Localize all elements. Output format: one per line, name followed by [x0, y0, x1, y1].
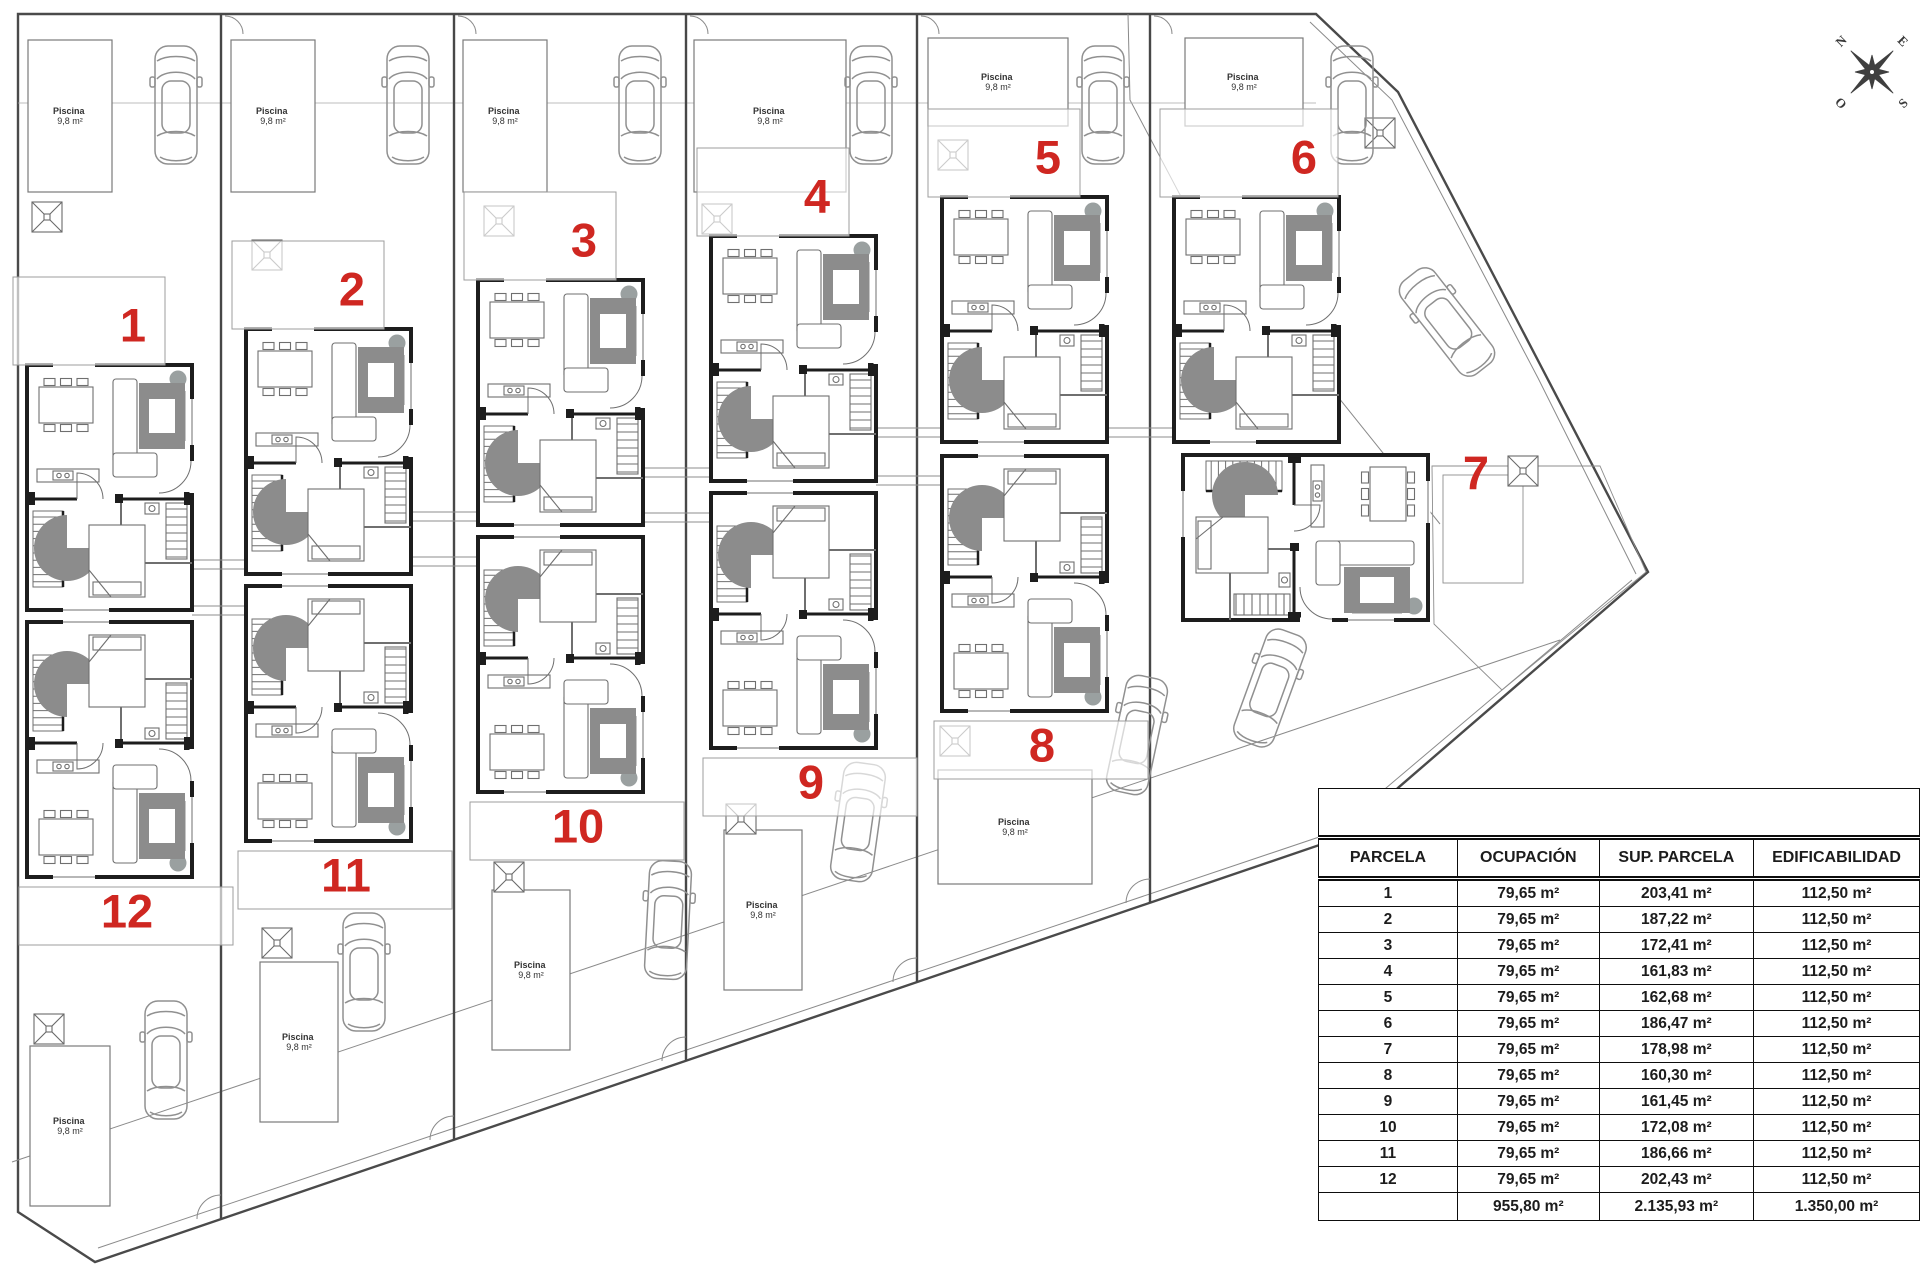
house-plan-parcel-9: [711, 491, 879, 751]
table-cell: 162,68 m²: [1599, 985, 1753, 1011]
gate-arc: [1126, 879, 1150, 903]
table-cell: 202,43 m²: [1599, 1167, 1753, 1193]
kitchen-counter: [952, 301, 1014, 314]
house-plan-parcel-3: [478, 278, 646, 528]
table-header-row: PARCELAOCUPACIÓNSUP. PARCELAEDIFICABILID…: [1319, 838, 1920, 879]
table-cell: 5: [1319, 985, 1458, 1011]
kitchen-counter: [488, 675, 550, 688]
table-cell: 79,65 m²: [1457, 959, 1599, 985]
bed: [89, 635, 145, 707]
compass-letter: N: [1832, 32, 1850, 50]
table-title-row: [1319, 789, 1920, 838]
table-cell: 172,41 m²: [1599, 933, 1753, 959]
drain-grate-icon: [262, 928, 292, 958]
car-icon: [338, 913, 390, 1031]
gate-arc: [1154, 16, 1172, 34]
table-row: 879,65 m²160,30 m²112,50 m²: [1319, 1063, 1920, 1089]
table-cell: 79,65 m²: [1457, 1141, 1599, 1167]
table-cell: 6: [1319, 1011, 1458, 1037]
parcel-number-7: 7: [1463, 447, 1489, 500]
walkway: [876, 476, 942, 485]
totals-cell: 955,80 m²: [1457, 1193, 1599, 1221]
table-cell: 8: [1319, 1063, 1458, 1089]
table-cell: 112,50 m²: [1754, 879, 1920, 907]
pool: Piscina 9,8 m²: [938, 770, 1092, 884]
totals-cell: 2.135,93 m²: [1599, 1193, 1753, 1221]
house-plan-parcel-6: [1174, 195, 1342, 445]
kitchen-counter: [37, 760, 99, 773]
table-cell: 79,65 m²: [1457, 985, 1599, 1011]
pool-label: Piscina 9,8 m²: [998, 817, 1032, 837]
table-row: 1279,65 m²202,43 m²112,50 m²: [1319, 1167, 1920, 1193]
bed: [1196, 517, 1268, 573]
house-plan-parcel-7: [1181, 455, 1431, 623]
gate-arc: [225, 16, 243, 34]
dining-table: [39, 379, 93, 432]
pool-label: Piscina 9,8 m²: [53, 106, 87, 126]
drain-grate-icon: [1508, 456, 1538, 486]
pool: Piscina 9,8 m²: [463, 40, 547, 192]
parcel-number-1: 1: [120, 299, 146, 352]
compass-letter: S: [1895, 95, 1911, 111]
totals-cell: [1319, 1193, 1458, 1221]
pool: Piscina 9,8 m²: [231, 40, 315, 192]
column-header: PARCELA: [1319, 838, 1458, 879]
gate-arc: [690, 16, 708, 34]
drain-grate-icon: [1365, 118, 1395, 148]
dining-table: [490, 294, 544, 347]
parcel-number-5: 5: [1035, 131, 1061, 184]
compass-letter: O: [1832, 94, 1850, 112]
car-icon: [614, 46, 666, 164]
table-row: 679,65 m²186,47 m²112,50 m²: [1319, 1011, 1920, 1037]
bed: [308, 599, 364, 671]
walkway: [192, 606, 246, 615]
column-header: EDIFICABILIDAD: [1754, 838, 1920, 879]
bed: [773, 506, 829, 578]
table-cell: 10: [1319, 1115, 1458, 1141]
table-cell: 161,45 m²: [1599, 1089, 1753, 1115]
house-plan-parcel-4: [711, 234, 879, 484]
table-row: 579,65 m²162,68 m²112,50 m²: [1319, 985, 1920, 1011]
totals-cell: 1.350,00 m²: [1754, 1193, 1920, 1221]
table-cell: 79,65 m²: [1457, 907, 1599, 933]
dining-table: [258, 775, 312, 828]
pool-label: Piscina 9,8 m²: [981, 72, 1015, 92]
gate-arc: [458, 16, 476, 34]
dining-table: [39, 811, 93, 864]
walkway: [411, 512, 478, 521]
bed: [540, 440, 596, 512]
drain-grate-icon: [34, 1014, 64, 1044]
pool: Piscina 9,8 m²: [260, 962, 338, 1122]
kitchen-counter: [1184, 301, 1246, 314]
bed: [308, 489, 364, 561]
dining-table: [954, 645, 1008, 698]
table-row: 279,65 m²187,22 m²112,50 m²: [1319, 907, 1920, 933]
table-row: 479,65 m²161,83 m²112,50 m²: [1319, 959, 1920, 985]
parcel7-garden: [1432, 466, 1646, 690]
table-cell: 79,65 m²: [1457, 1089, 1599, 1115]
table-cell: 112,50 m²: [1754, 1011, 1920, 1037]
table-row: 1079,65 m²172,08 m²112,50 m²: [1319, 1115, 1920, 1141]
parcel-number-10: 10: [552, 800, 604, 853]
kitchen-counter: [721, 631, 783, 644]
car-icon: [1077, 46, 1129, 164]
house-plan-parcel-10: [478, 535, 646, 795]
car-icon: [1225, 624, 1314, 753]
table-cell: 79,65 m²: [1457, 1063, 1599, 1089]
pool-label: Piscina 9,8 m²: [488, 106, 522, 126]
walkway: [192, 560, 246, 569]
walkway: [1107, 428, 1174, 437]
kitchen-counter: [1311, 465, 1324, 527]
dining-table: [258, 343, 312, 396]
table-cell: 79,65 m²: [1457, 1167, 1599, 1193]
table-cell: 112,50 m²: [1754, 1089, 1920, 1115]
gate-arc: [197, 1195, 221, 1219]
dining-table: [723, 250, 777, 303]
table-cell: 186,66 m²: [1599, 1141, 1753, 1167]
drain-grate-icon: [494, 862, 524, 892]
pool: Piscina 9,8 m²: [30, 1046, 110, 1206]
gate-arc: [921, 16, 939, 34]
car-icon: [150, 46, 202, 164]
parcel-number-11: 11: [321, 849, 371, 902]
parcel-number-9: 9: [798, 756, 824, 809]
table-cell: 12: [1319, 1167, 1458, 1193]
pool-label: Piscina 9,8 m²: [514, 960, 548, 980]
table-cell: 112,50 m²: [1754, 1037, 1920, 1063]
pool-label: Piscina 9,8 m²: [1227, 72, 1261, 92]
table-cell: 112,50 m²: [1754, 1115, 1920, 1141]
pool-label: Piscina 9,8 m²: [53, 1116, 87, 1136]
house-plan-parcel-2: [246, 327, 414, 577]
kitchen-counter: [256, 724, 318, 737]
table-cell: 186,47 m²: [1599, 1011, 1753, 1037]
table-cell: 9: [1319, 1089, 1458, 1115]
house-plan-parcel-5: [942, 195, 1110, 445]
table-row: 779,65 m²178,98 m²112,50 m²: [1319, 1037, 1920, 1063]
table-cell: 112,50 m²: [1754, 985, 1920, 1011]
parcel-number-4: 4: [804, 170, 830, 223]
parcel-number-6: 6: [1291, 131, 1317, 184]
bed: [89, 525, 145, 597]
table-row: 979,65 m²161,45 m²112,50 m²: [1319, 1089, 1920, 1115]
drain-grate-icon: [32, 202, 62, 232]
pool: Piscina 9,8 m²: [28, 40, 112, 192]
table-cell: 79,65 m²: [1457, 1115, 1599, 1141]
dining-table: [723, 682, 777, 735]
car-icon: [1390, 260, 1504, 385]
kitchen-counter: [37, 469, 99, 482]
table-cell: 172,08 m²: [1599, 1115, 1753, 1141]
site-plan-page: Piscina 9,8 m² Piscina 9,8 m² Piscina 9,…: [0, 0, 1920, 1280]
table-cell: 7: [1319, 1037, 1458, 1063]
pool-label: Piscina 9,8 m²: [746, 900, 780, 920]
bed: [773, 396, 829, 468]
column-header: OCUPACIÓN: [1457, 838, 1599, 879]
table-row: 179,65 m²203,41 m²112,50 m²: [1319, 879, 1920, 907]
table-cell: 79,65 m²: [1457, 1011, 1599, 1037]
table-cell: 112,50 m²: [1754, 1167, 1920, 1193]
table-cell: 187,22 m²: [1599, 907, 1753, 933]
compass-rose: NESO: [1832, 32, 1911, 112]
kitchen-counter: [256, 433, 318, 446]
table-cell: 1: [1319, 879, 1458, 907]
column-header: SUP. PARCELA: [1599, 838, 1753, 879]
house-plan-parcel-11: [246, 584, 414, 844]
table-cell: 112,50 m²: [1754, 907, 1920, 933]
parcel-number-12: 12: [101, 885, 153, 938]
car-icon: [845, 46, 897, 164]
table-row: 1179,65 m²186,66 m²112,50 m²: [1319, 1141, 1920, 1167]
car-icon: [140, 1001, 192, 1119]
pool: Piscina 9,8 m²: [492, 890, 570, 1050]
gate-arc: [430, 1116, 454, 1140]
pool-label: Piscina 9,8 m²: [282, 1032, 316, 1052]
table-title: [1319, 789, 1920, 838]
bed: [540, 550, 596, 622]
table-cell: 79,65 m²: [1457, 1037, 1599, 1063]
table-cell: 112,50 m²: [1754, 1141, 1920, 1167]
kitchen-counter: [488, 384, 550, 397]
parcel-number-2: 2: [339, 263, 365, 316]
table-cell: 160,30 m²: [1599, 1063, 1753, 1089]
car-icon: [382, 46, 434, 164]
bed: [1236, 357, 1292, 429]
compass-letter: E: [1895, 33, 1912, 50]
table-row: 379,65 m²172,41 m²112,50 m²: [1319, 933, 1920, 959]
house-plan-parcel-1: [27, 363, 195, 613]
bed: [1004, 357, 1060, 429]
pool-label: Piscina 9,8 m²: [256, 106, 290, 126]
car-icon: [639, 860, 697, 981]
walkway: [643, 468, 711, 477]
table-cell: 112,50 m²: [1754, 1063, 1920, 1089]
walkway: [411, 557, 478, 566]
table-cell: 178,98 m²: [1599, 1037, 1753, 1063]
table-cell: 11: [1319, 1141, 1458, 1167]
table-cell: 4: [1319, 959, 1458, 985]
table-cell: 79,65 m²: [1457, 879, 1599, 907]
walkway: [876, 428, 942, 437]
table-cell: 3: [1319, 933, 1458, 959]
pool: Piscina 9,8 m²: [724, 830, 802, 990]
parcel-number-8: 8: [1029, 719, 1055, 772]
house-plan-parcel-12: [27, 620, 195, 880]
kitchen-counter: [721, 340, 783, 353]
house-plan-parcel-8: [942, 454, 1110, 714]
table-cell: 112,50 m²: [1754, 933, 1920, 959]
bed: [1004, 469, 1060, 541]
table-cell: 79,65 m²: [1457, 933, 1599, 959]
pool-label: Piscina 9,8 m²: [753, 106, 787, 126]
parcel-number-3: 3: [571, 214, 597, 267]
walkway: [643, 513, 711, 522]
gate-arc: [893, 958, 917, 982]
dining-table: [490, 726, 544, 779]
table-cell: 2: [1319, 907, 1458, 933]
kitchen-counter: [952, 594, 1014, 607]
table-cell: 112,50 m²: [1754, 959, 1920, 985]
table-cell: 161,83 m²: [1599, 959, 1753, 985]
table-cell: 203,41 m²: [1599, 879, 1753, 907]
table-totals-row: 955,80 m²2.135,93 m²1.350,00 m²: [1319, 1193, 1920, 1221]
parcel-summary-table: PARCELAOCUPACIÓNSUP. PARCELAEDIFICABILID…: [1318, 788, 1920, 1221]
